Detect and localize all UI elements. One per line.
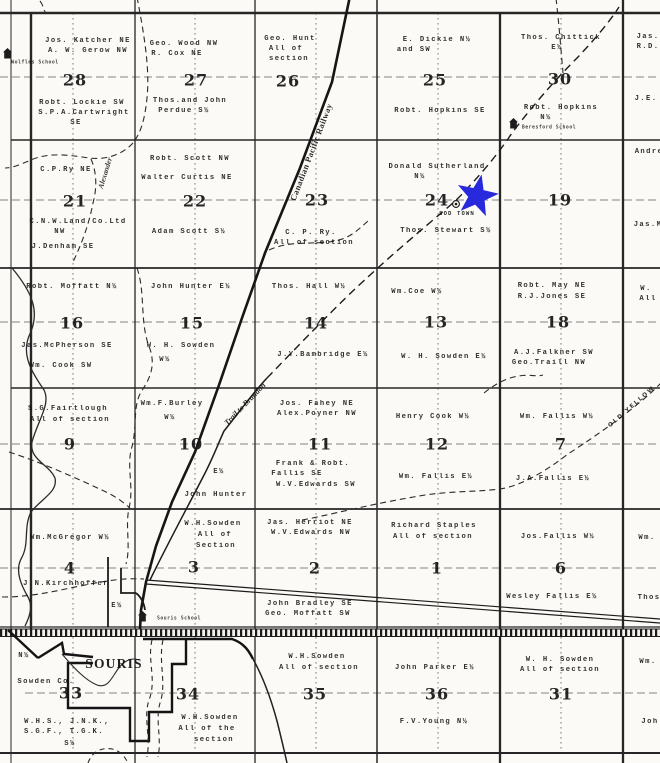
s3-owner-1: W.H.Sowden (184, 520, 241, 528)
s30-owner-n-2: N½ (540, 114, 551, 122)
s36-number: 36 (425, 685, 449, 704)
s4-owner-2: J.N.Kirchhoffer (23, 580, 109, 588)
s11-owner-ne: Jos. Fahey NE (280, 400, 354, 408)
s14-number: 14 (304, 314, 328, 333)
s28-owner-ne: Jos. Katcher NE (45, 37, 131, 45)
s11-number: 11 (308, 435, 332, 454)
s16-number: 16 (60, 314, 84, 333)
s16-owner-n: Robt. Moffatt N½ (26, 283, 117, 291)
s15-number: 15 (180, 314, 204, 333)
s2-owner-nw: W.V.Edwards NW (271, 529, 351, 537)
s3-number: 3 (188, 558, 200, 577)
edge-w-owner-1: N½ (18, 652, 29, 660)
trail-to-brandon-label: Trail to Brandon (222, 381, 267, 427)
wolfles-school-icon (3, 46, 12, 57)
s6-owner-w: Jos.Fallis W½ (521, 533, 595, 541)
s9-number: 9 (64, 435, 76, 454)
s30-owner-n: Robt. Hopkins (524, 104, 598, 112)
edge-e-owner-5: Wm. (638, 534, 655, 542)
s6-number: 6 (555, 559, 567, 578)
s27-owner-s-2: Perdue S½ (158, 107, 209, 115)
s26-owner-1: Geo. Hunt (264, 35, 315, 43)
s11-owner-sw: W.V.Edwards SW (276, 481, 356, 489)
edge-e-owner-3: W. (640, 285, 651, 293)
s15-owner-w-2: W½ (159, 356, 170, 364)
s18-owner-ne: Robt. May NE (518, 282, 587, 290)
s28-owner-se: S.P.A.Cartwright (38, 109, 129, 117)
s21-number: 21 (63, 192, 87, 211)
s36-owner-1: John Parker E½ (395, 664, 475, 672)
s10-number: 10 (179, 435, 203, 454)
s21-owner-nw-2: NW (54, 228, 65, 236)
s34-owner-3: section (194, 736, 234, 744)
s36-owner-2: F.V.Young N½ (400, 718, 469, 726)
s35-owner-2: All of section (279, 664, 359, 672)
s14-owner-w: Thos. Hall W½ (272, 283, 346, 291)
old-yellow-trail-label: OLD YELLOW (607, 385, 656, 429)
souris-school-icon (138, 609, 147, 620)
s28-owner-nw: A. W. Gerow NW (48, 47, 128, 55)
s7-owner-w: Wm. Fallis W½ (520, 413, 594, 421)
s11-owner-se: Frank & Robt. (276, 460, 350, 468)
s4-owner-w: Wm.McGregor W½ (30, 534, 110, 542)
s30-number: 30 (548, 70, 572, 89)
s35-number: 35 (303, 685, 327, 704)
s25-number: 25 (423, 71, 447, 90)
s24-owner-n-2: N½ (414, 173, 425, 181)
s31-owner-1: W. H. Sowden (526, 656, 595, 664)
s16-owner-sw: Wm. Cook SW (30, 362, 93, 370)
s28-number: 28 (63, 71, 87, 90)
s23-number: 23 (305, 191, 329, 210)
s2-owner-sw: Geo. Moffatt SW (265, 610, 351, 618)
s26-owner-3: section (269, 55, 309, 63)
s9-owner-2: All of section (30, 416, 110, 424)
s13-owner-e: W. H. Sowden E½ (401, 353, 487, 361)
s4-owner-3: E½ (111, 602, 122, 610)
edge-ne-owner-3: J.E. (635, 95, 658, 103)
s26-owner-2: All of (269, 45, 303, 53)
s9-owner-1: S.G.Fairtlough (28, 405, 108, 413)
s35-owner-1: W.H.Sowden (288, 653, 345, 661)
alexander-trail-label: Alexander (96, 156, 114, 189)
s6-owner-e: Wesley Fallis E½ (506, 593, 597, 601)
wolfles-school-label: Wolfles School (11, 61, 58, 66)
s23-owner-1: C. P. Ry. (285, 229, 336, 237)
s19-number: 19 (548, 191, 572, 210)
s27-owner-ne: R. Cox NE (151, 50, 202, 58)
s24-owner-n: Donald Sutherland (388, 163, 485, 171)
s3-owner-2: All of (198, 531, 232, 539)
edge-e-owner-7: Wm. (639, 658, 656, 666)
s21-owner-nw: C.N.W.Land Co.Ltd (29, 218, 126, 226)
s27-owner-s: Thos.and John (153, 97, 227, 105)
map-labels: Jos. Katcher NEA. W. Gerow NW28Robt. Loc… (0, 0, 660, 763)
s23-owner-2: All of section (274, 239, 354, 247)
cp-railway-label: Canadian Pacific Railway (288, 102, 334, 202)
s25-owner-se: Robt. Hopkins SE (394, 107, 485, 115)
souris-school-label: Souris School (157, 617, 201, 622)
s7-number: 7 (555, 435, 567, 454)
s33-owner-3: S½ (64, 740, 75, 748)
s12-owner-e: Wm. Fallis E½ (399, 473, 473, 481)
s26-number: 26 (276, 72, 300, 91)
s3-owner-3: Section (196, 542, 236, 550)
s2-number: 2 (309, 559, 321, 578)
s24-owner-s: Thos. Stewart S½ (400, 227, 491, 235)
s25-owner-n-2: and SW (397, 46, 431, 54)
s34-owner-2: All of the (178, 725, 235, 733)
s15-owner-e: John Hunter E½ (151, 283, 231, 291)
s1-owner-1: Richard Staples (391, 522, 477, 530)
s10-owner-e-2: E½ (213, 468, 224, 476)
s12-number: 12 (425, 435, 449, 454)
edge-e-owner-1: Andre (635, 148, 660, 156)
s18-owner-sw: A.J.Falkner SW (514, 349, 594, 357)
s31-owner-2: All of section (520, 666, 600, 674)
s10-owner-w: Wm.F.Burley (141, 400, 204, 408)
s11-owner-nw: Alex.Poyner NW (277, 410, 357, 418)
s22-owner-s: Adam Scott S½ (152, 228, 226, 236)
s27-number: 27 (184, 71, 208, 90)
s34-owner-1: W.H.Sowden (181, 714, 238, 722)
edge-e-owner-8: Joh (641, 718, 658, 726)
s4-number: 4 (64, 559, 76, 578)
s11-owner-se-2: Fallis SE (271, 470, 322, 478)
s2-owner-se: John Bradley SE (267, 600, 353, 608)
beresford-school-label: Beresford School (522, 126, 576, 131)
s33-owner-1: W.H.S., J.N.K., (24, 718, 110, 726)
s12-owner-w: Henry Cook W½ (396, 413, 470, 421)
edge-e-owner-4: All (639, 295, 656, 303)
s22-owner-nw: Robt. Scott NW (150, 155, 230, 163)
s18-owner-se: R.J.Jones SE (518, 293, 587, 301)
s7-owner-e: J.A.Fallis E½ (516, 475, 590, 483)
s27-owner-nw: Geo. Wood NW (150, 40, 219, 48)
s33-owner-2: S.G.F., T.G.K. (24, 728, 104, 736)
edge-ne-owner-1: Jas. (637, 33, 660, 41)
s28-owner-se-2: SE (70, 119, 81, 127)
beresford-school-icon (509, 116, 518, 127)
s16-owner-se: Jas.McPherson SE (21, 342, 112, 350)
sod-town-label: SOD TOWN (439, 211, 475, 217)
s15-owner-w: W. H. Sowden (147, 342, 216, 350)
s21-owner-se: J.Denham SE (32, 243, 95, 251)
s14-owner-e: J.Y.Bambridge E½ (277, 351, 368, 359)
township-map: Jos. Katcher NEA. W. Gerow NW28Robt. Loc… (0, 0, 660, 763)
edge-ne-owner-2: R.D. (637, 43, 660, 51)
s34-number: 34 (176, 685, 200, 704)
s10-owner-w-2: W½ (164, 414, 175, 422)
souris-town-label: SOURIS (85, 656, 142, 672)
s24-number: 24 (425, 191, 449, 210)
s1-number: 1 (431, 559, 443, 578)
s22-number: 22 (183, 192, 207, 211)
s1-owner-2: All of section (393, 533, 473, 541)
s25-owner-n: E. Dickie N½ (403, 36, 472, 44)
s33-number: 33 (59, 684, 83, 703)
s18-owner-nw: Geo.Traill NW (512, 359, 586, 367)
s31-number: 31 (549, 685, 573, 704)
edge-e-owner-2: Jas.M (634, 221, 660, 229)
s21-owner-ne: C.P.Ry NE (40, 166, 91, 174)
s30-owner-e: Thos. Chittick (521, 34, 601, 42)
s30-owner-e-2: E½ (551, 44, 562, 52)
s13-owner-w: Wm.Coe W½ (391, 288, 442, 296)
s13-number: 13 (424, 313, 448, 332)
edge-e-owner-6: Thos (638, 594, 660, 602)
s18-number: 18 (546, 313, 570, 332)
s2-owner-ne: Jas. Herriot NE (267, 519, 353, 527)
s22-owner-ne: Walter Curtis NE (141, 174, 232, 182)
s10-owner-e: John Hunter (185, 491, 248, 499)
s28-owner-sw: Robt. Lockie SW (39, 99, 125, 107)
